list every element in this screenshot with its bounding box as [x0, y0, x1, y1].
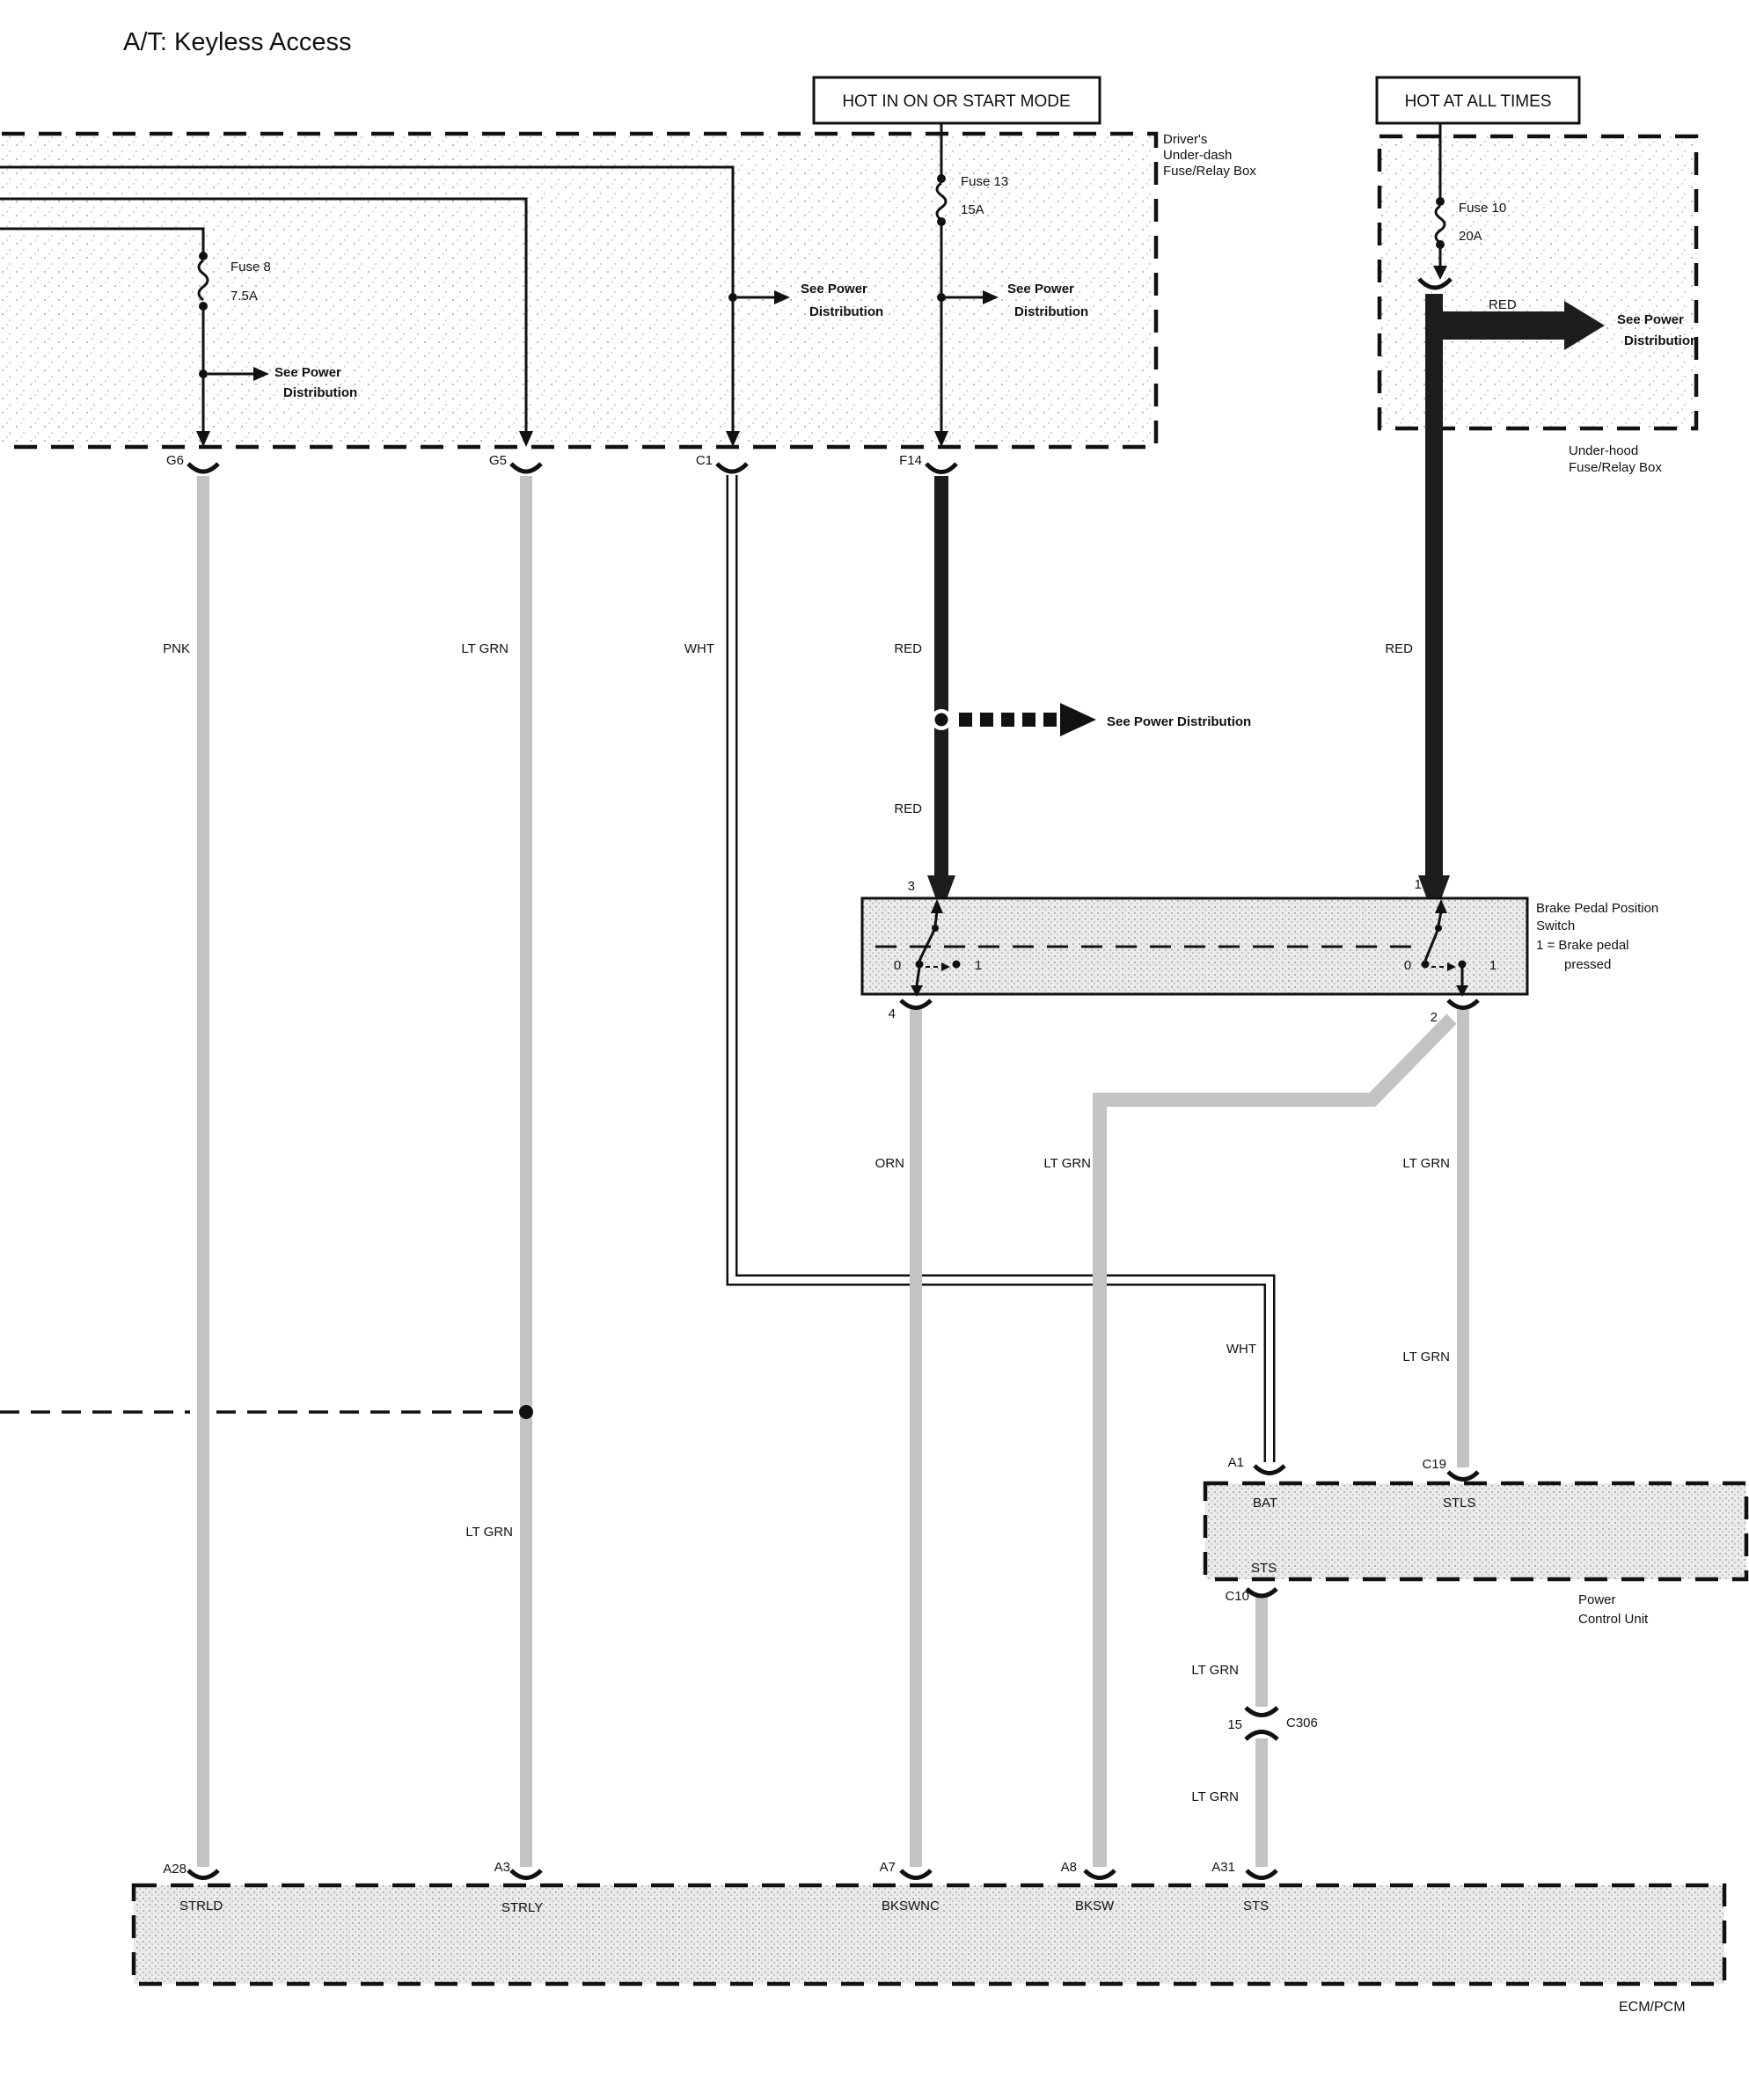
wire-ltgrn-right-2: LT GRN	[1402, 1350, 1450, 1365]
see-power-mid: See Power Distribution	[1107, 714, 1251, 729]
wire-ltgrn-g5b: LT GRN	[465, 1525, 513, 1540]
conn-g6: G6	[166, 453, 184, 468]
red-power-tap	[931, 703, 1096, 736]
pcu-label-2: Control Unit	[1578, 1612, 1649, 1627]
pin-a8: A8	[1061, 1860, 1077, 1875]
ecm-bkswnc: BKSWNC	[882, 1899, 940, 1913]
pin-4: 4	[889, 1006, 896, 1021]
fuse10-rating: 20A	[1459, 229, 1482, 244]
connector-pin2	[1448, 1000, 1478, 1008]
pin-3: 3	[908, 879, 915, 894]
see-power-1b: Distribution	[283, 385, 357, 400]
pin-1: 1	[1415, 877, 1422, 892]
sw-1-left: 1	[975, 958, 982, 973]
see-power-2a: See Power	[801, 282, 867, 296]
pin3-taper	[927, 875, 955, 899]
pin-a28: A28	[163, 1862, 187, 1877]
underdash-label-1: Driver's	[1163, 132, 1207, 147]
connector-a7	[901, 1870, 931, 1878]
switch-label-3: 1 = Brake pedal	[1536, 938, 1629, 953]
connectors	[188, 279, 1478, 1878]
ecm-strld: STRLD	[179, 1899, 223, 1913]
conn-15: 15	[1227, 1717, 1242, 1732]
wire-ltgrn-g5: LT GRN	[461, 641, 509, 656]
wire-wht-a1: WHT	[1226, 1342, 1256, 1357]
connector-c1	[717, 464, 747, 472]
switch-label-2: Switch	[1536, 918, 1575, 933]
pin-c19: C19	[1422, 1457, 1446, 1472]
pcu-stls: STLS	[1443, 1496, 1476, 1511]
see-power-4b: Distribution	[1624, 333, 1698, 348]
connector-a31	[1247, 1870, 1277, 1878]
banner-hot-all-text: HOT AT ALL TIMES	[1405, 92, 1552, 111]
connector-c306-top	[1246, 1708, 1277, 1716]
wire-ltgrn-right-1: LT GRN	[1402, 1156, 1450, 1171]
underdash-label-2: Under-dash	[1163, 148, 1232, 163]
wire-red-f14: RED	[894, 641, 922, 656]
ecm-sts: STS	[1243, 1899, 1269, 1913]
conn-f14: F14	[899, 453, 922, 468]
connector-g5	[511, 464, 541, 472]
connector-a8	[1085, 1870, 1115, 1878]
connector-c19	[1448, 1472, 1478, 1480]
wire-ltgrn-c10b: LT GRN	[1191, 1789, 1239, 1804]
ecm-label: ECM/PCM	[1619, 2000, 1686, 2015]
banner-hot-on-text: HOT IN ON OR START MODE	[842, 92, 1070, 111]
gray-wires	[203, 476, 1463, 1867]
connector-a28	[188, 1870, 218, 1878]
underdash-label-3: Fuse/Relay Box	[1163, 164, 1256, 179]
wiring-diagram-page: A/T: Keyless AccessHOT IN ON OR START MO…	[0, 0, 1749, 2100]
see-power-2b: Distribution	[809, 304, 883, 319]
wire-ltgrn-a8: LT GRN	[1043, 1156, 1091, 1171]
conn-c306: C306	[1286, 1716, 1318, 1730]
underhood-label-1: Under-hood	[1569, 443, 1638, 458]
pcu-sts: STS	[1251, 1561, 1277, 1576]
pin-a3: A3	[494, 1860, 510, 1875]
switch-label-4: pressed	[1564, 957, 1611, 972]
wire-red-f14-2: RED	[894, 801, 922, 816]
junction-dot	[519, 1405, 533, 1419]
fuse8-rating: 7.5A	[231, 289, 258, 304]
red-branch-label: RED	[1489, 297, 1517, 312]
connector-c306-bottom	[1246, 1732, 1277, 1740]
connector-f14	[926, 464, 956, 472]
pin-2: 2	[1431, 1010, 1438, 1025]
see-power-3a: See Power	[1007, 282, 1074, 296]
wire-pnk: PNK	[163, 641, 190, 656]
see-power-4a: See Power	[1617, 312, 1684, 327]
wire-orn: ORN	[875, 1156, 904, 1171]
wiring-diagram-canvas: A/T: Keyless AccessHOT IN ON OR START MO…	[0, 0, 1749, 2100]
pin-c10: C10	[1225, 1589, 1249, 1604]
ecm-bksw: BKSW	[1075, 1899, 1115, 1913]
fuse10-name: Fuse 10	[1459, 201, 1506, 216]
ecm-strly: STRLY	[501, 1900, 543, 1915]
connector-c10	[1247, 1589, 1277, 1596]
connector-pin4	[901, 1000, 931, 1008]
fuse8-name: Fuse 8	[231, 260, 271, 274]
underhood-label-2: Fuse/Relay Box	[1569, 460, 1662, 475]
wire-red-right: RED	[1385, 641, 1413, 656]
pin-a1: A1	[1228, 1455, 1244, 1470]
wire-ltgrn-c10a: LT GRN	[1191, 1663, 1239, 1678]
pcu-label-1: Power	[1578, 1592, 1616, 1607]
conn-g5: G5	[489, 453, 507, 468]
see-power-3b: Distribution	[1014, 304, 1088, 319]
pin-a31: A31	[1211, 1860, 1235, 1875]
connector-a3	[511, 1870, 541, 1878]
wire-wht-c1: WHT	[684, 641, 714, 656]
fuse13-rating: 15A	[961, 202, 984, 217]
sw-0-left: 0	[894, 958, 901, 973]
pcu-bat: BAT	[1253, 1496, 1277, 1511]
conn-c1: C1	[696, 453, 713, 468]
see-power-1a: See Power	[274, 365, 341, 380]
fuse13-name: Fuse 13	[961, 174, 1008, 189]
sw-1-right: 1	[1489, 958, 1497, 973]
switch-label-1: Brake Pedal Position	[1536, 901, 1658, 916]
sw-0-right: 0	[1404, 958, 1411, 973]
connector-g6	[188, 464, 218, 472]
pin-a7: A7	[880, 1860, 896, 1875]
connector-a1	[1255, 1466, 1284, 1474]
pin1-taper	[1418, 875, 1450, 899]
page-title: A/T: Keyless Access	[123, 28, 352, 56]
g5-junction	[0, 1405, 533, 1419]
